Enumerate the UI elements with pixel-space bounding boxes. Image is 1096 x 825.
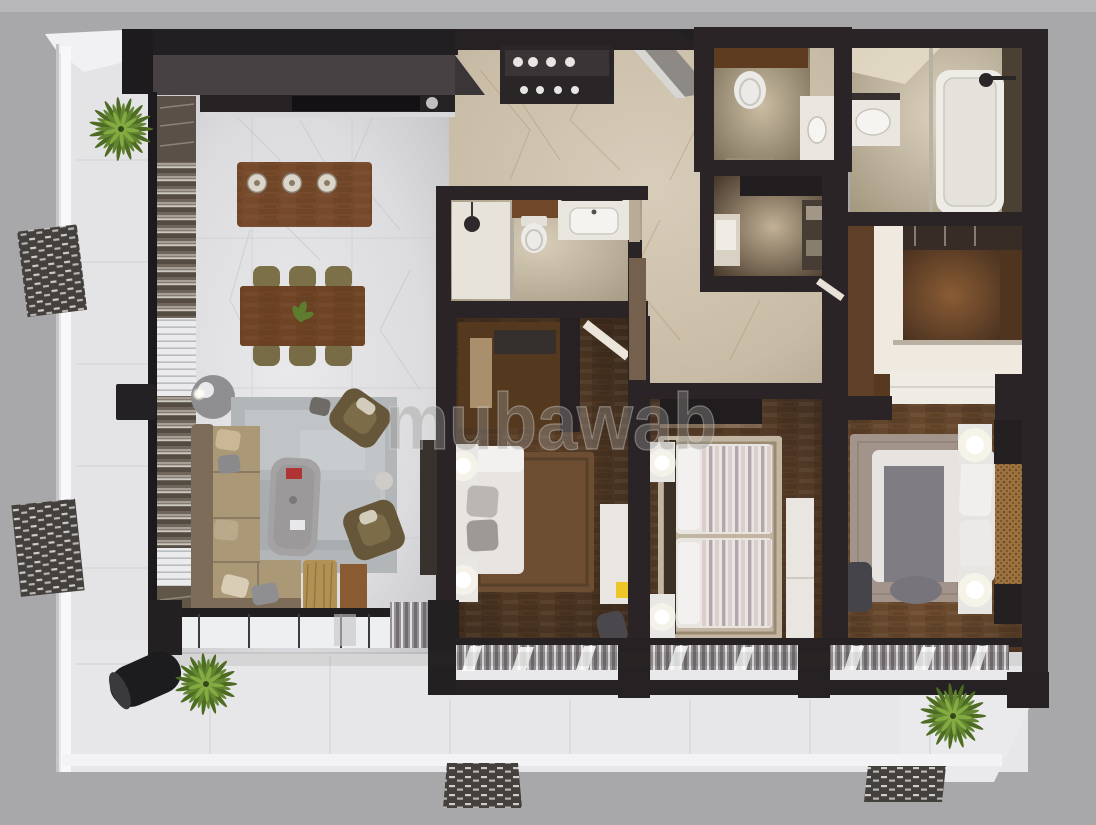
svg-text:mubawab: mubawab <box>385 377 717 466</box>
